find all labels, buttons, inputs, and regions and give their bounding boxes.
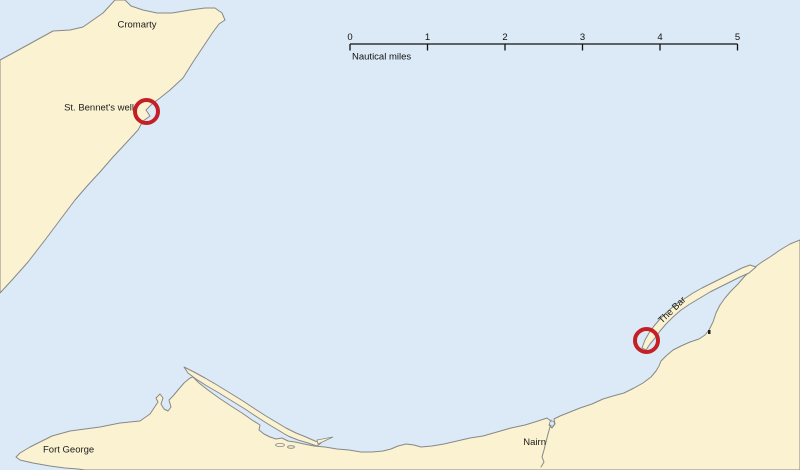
map-svg: 0 1 2 3 4 5 Nautical miles Cromarty St. … <box>0 0 800 470</box>
scale-tick-label-1: 1 <box>425 32 430 43</box>
map-canvas: 0 1 2 3 4 5 Nautical miles Cromarty St. … <box>0 0 800 470</box>
scale-tick-label-2: 2 <box>502 32 507 43</box>
scale-tick-label-0: 0 <box>347 32 352 43</box>
shore-speck <box>708 330 711 334</box>
scale-tick-label-5: 5 <box>735 32 740 43</box>
scale-tick-label-3: 3 <box>580 32 585 43</box>
label-cromarty: Cromarty <box>117 20 156 31</box>
label-nairn: Nairn <box>523 437 546 448</box>
channel-islet <box>276 443 285 446</box>
label-fort-george: Fort George <box>43 445 94 456</box>
nairn-harbour <box>550 421 555 426</box>
label-st-bennets-well: St. Bennet's well <box>64 103 134 114</box>
scale-tick-label-4: 4 <box>657 32 662 43</box>
scale-unit-label: Nautical miles <box>352 52 411 63</box>
channel-islet-small <box>288 446 295 449</box>
